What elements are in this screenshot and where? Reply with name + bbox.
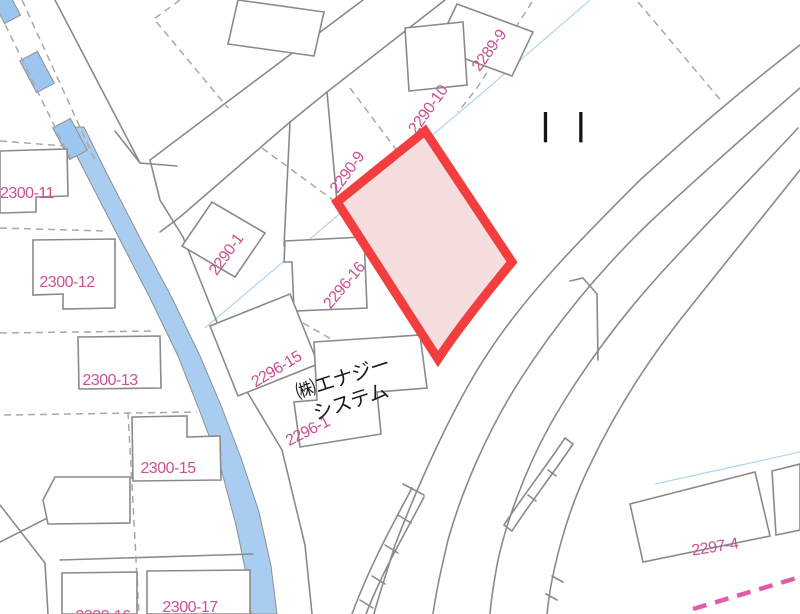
building-outline xyxy=(78,336,161,389)
building-outline xyxy=(405,22,467,91)
bridge-symbol: | | xyxy=(540,108,593,143)
building-outline xyxy=(147,570,250,614)
building-outline xyxy=(43,477,130,524)
cadastral-map-viewport[interactable]: 2300-112300-122300-132300-152300-162300-… xyxy=(0,0,800,614)
building-outline xyxy=(0,149,68,213)
building-outline xyxy=(228,0,324,56)
building-outline xyxy=(33,239,115,309)
building-outline xyxy=(772,464,800,535)
highlighted-parcel[interactable] xyxy=(337,131,512,359)
culvert-icon xyxy=(0,0,87,160)
building-outline xyxy=(284,237,367,311)
pink-boundary-line xyxy=(693,577,800,609)
building-outline xyxy=(62,572,137,614)
building-outline xyxy=(630,472,770,562)
building-outline-company xyxy=(294,335,427,447)
cadastral-map[interactable] xyxy=(0,0,800,614)
